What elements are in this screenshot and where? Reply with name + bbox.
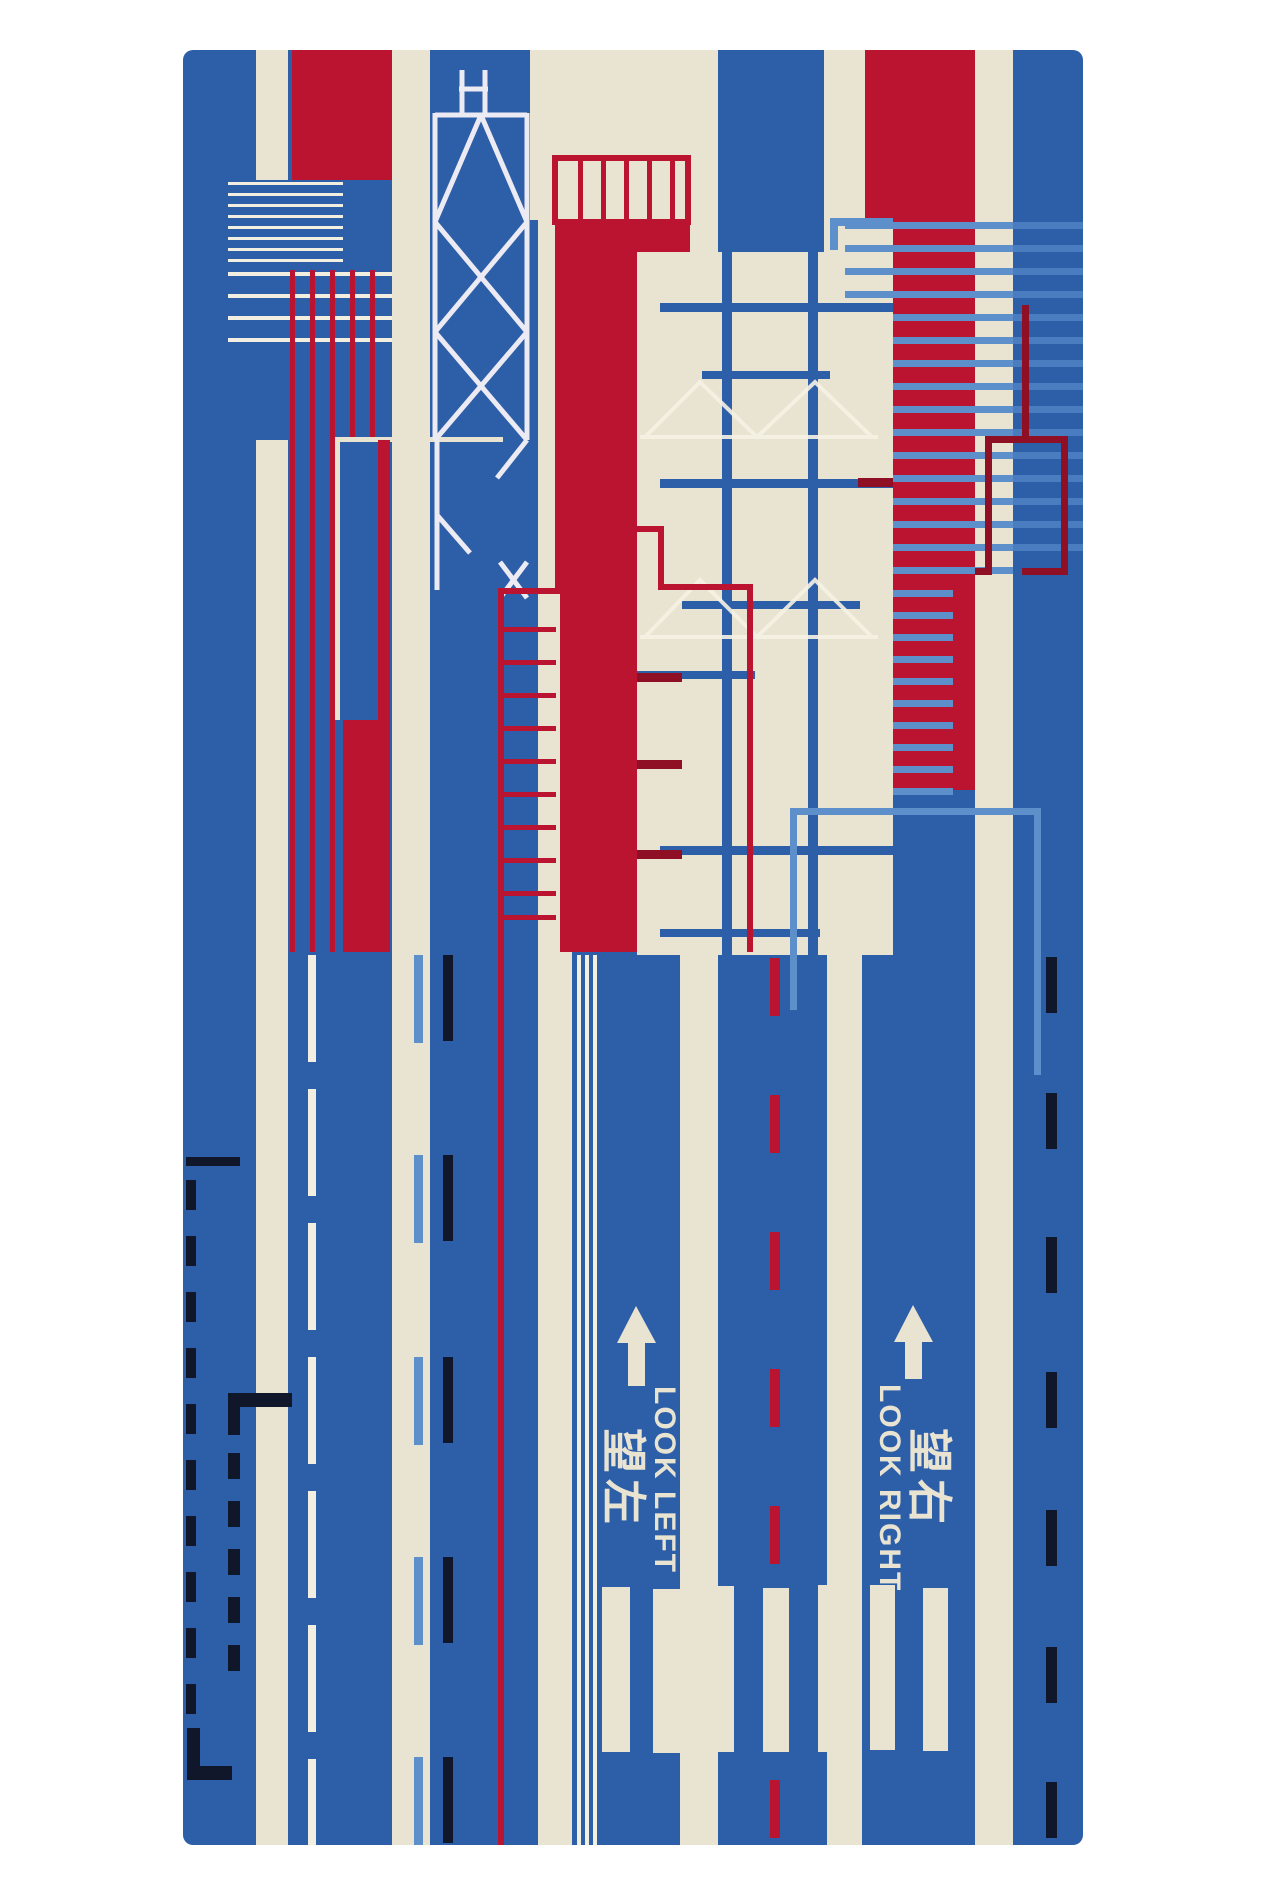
look-right-text: LOOK RIGHT — [872, 1384, 904, 1570]
look-left-chinese-text: 望左 — [600, 1428, 646, 1528]
look-right-chinese-text: 望右 — [906, 1428, 952, 1528]
center-building — [637, 252, 893, 955]
look-left-text: LOOK LEFT — [647, 1386, 679, 1566]
photo-canvas: LOOK LEFT 望左 LOOK RIGHT 望右 — [0, 0, 1267, 1900]
rug-artwork: LOOK LEFT 望左 LOOK RIGHT 望右 — [0, 0, 1267, 1900]
left-building-facade — [228, 180, 392, 440]
